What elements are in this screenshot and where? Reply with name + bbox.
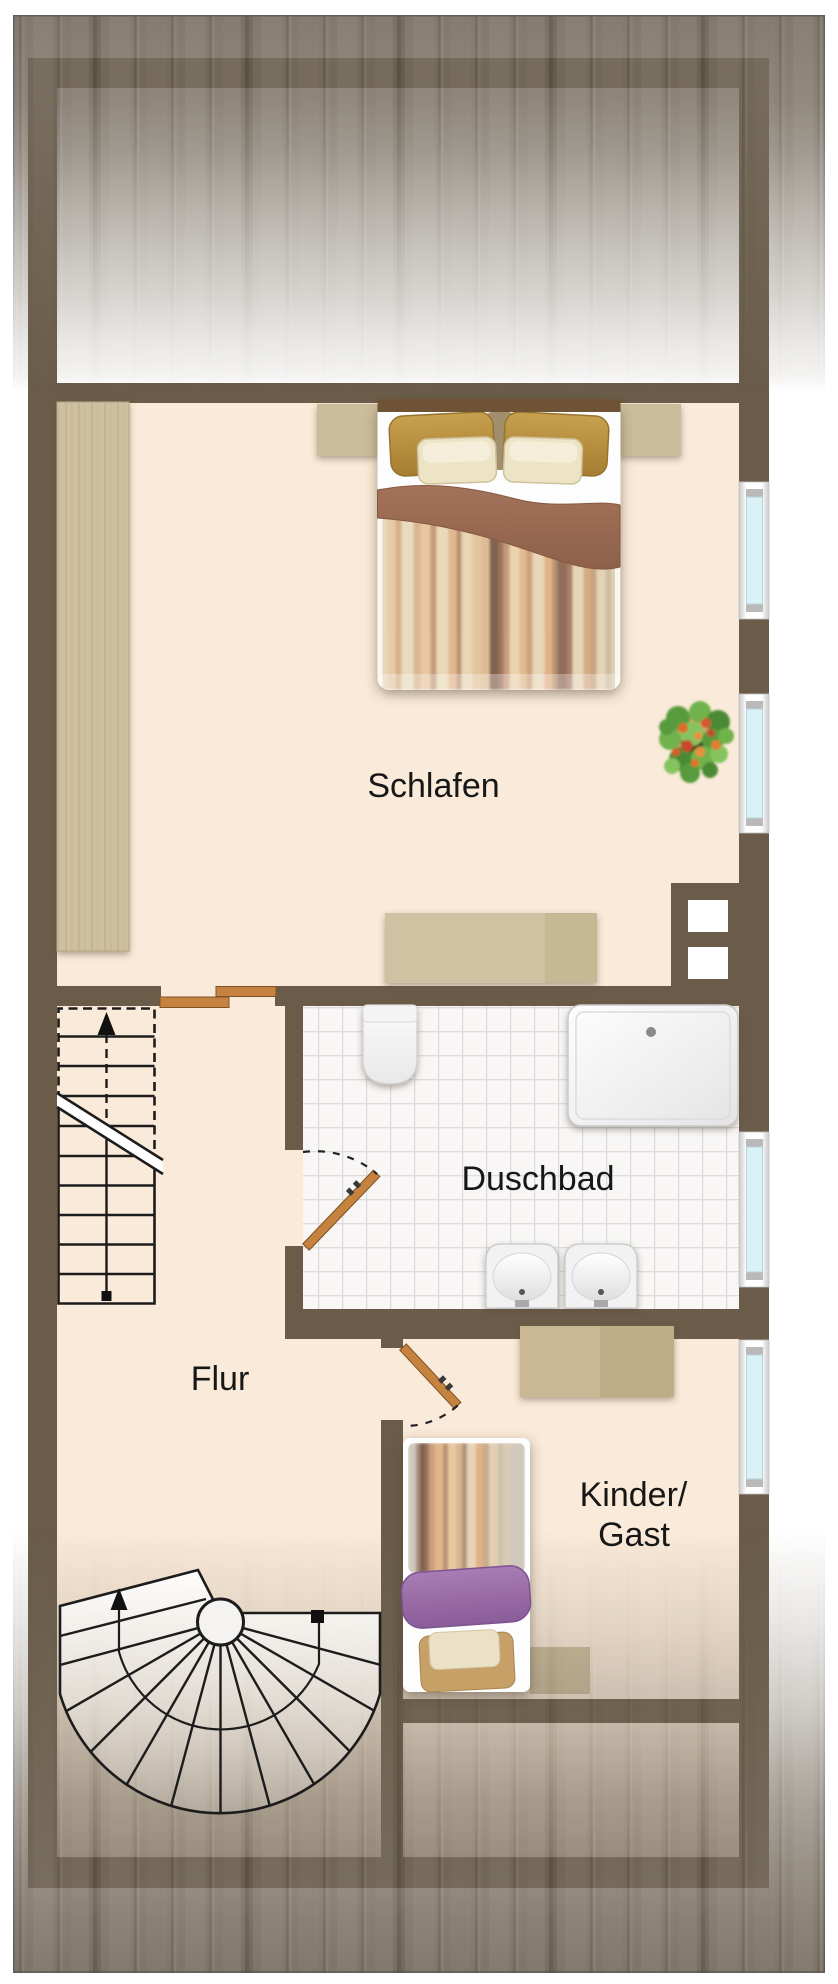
svg-text:Schlafen: Schlafen	[367, 767, 499, 805]
svg-text:Flur: Flur	[191, 1360, 250, 1398]
svg-text:Kinder/: Kinder/	[580, 1476, 688, 1514]
svg-text:Gast: Gast	[598, 1516, 670, 1554]
svg-text:Duschbad: Duschbad	[461, 1160, 614, 1198]
